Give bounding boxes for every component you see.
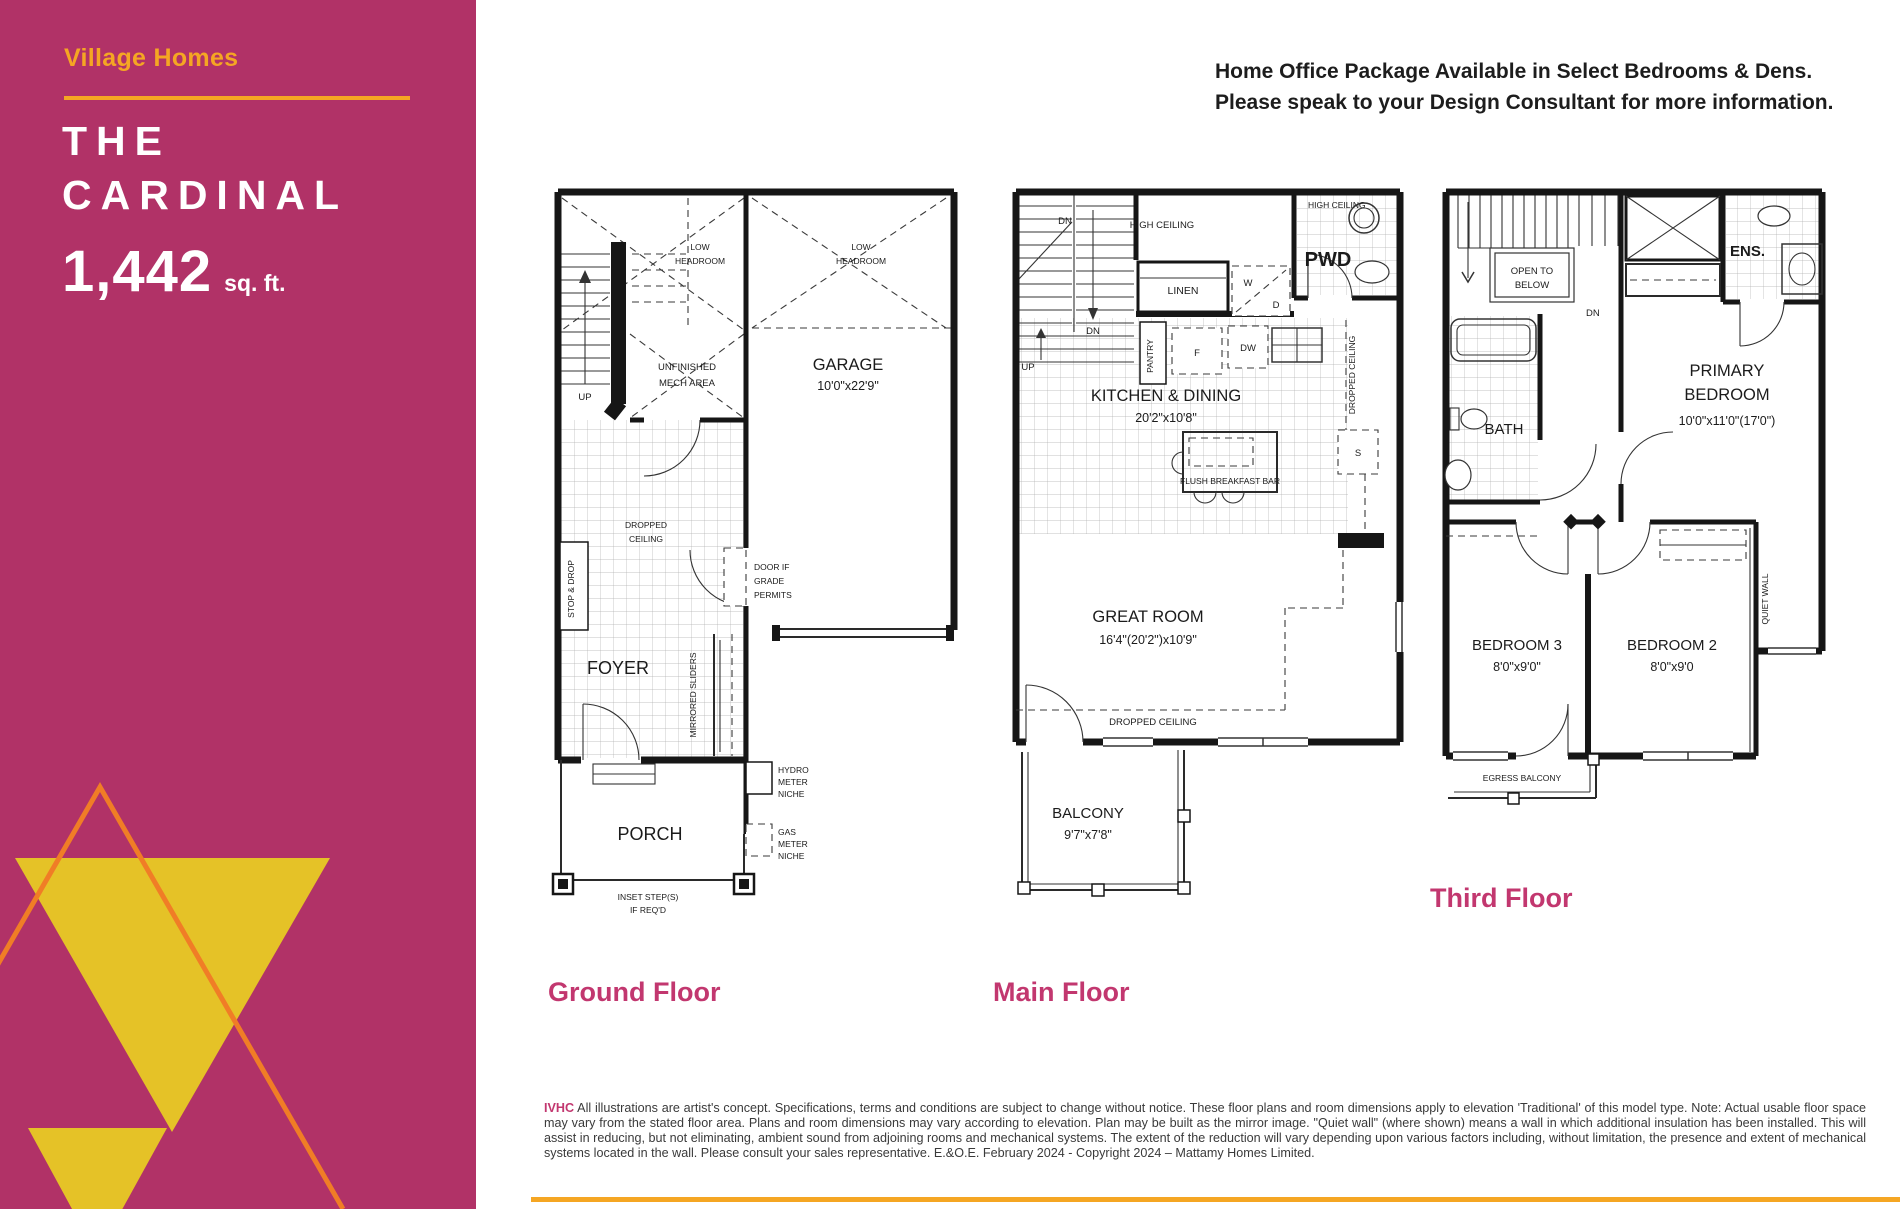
model-title-line1: THE <box>62 118 171 165</box>
egress-balcony-label: EGRESS BALCONY <box>1483 773 1562 783</box>
large-triangle-shape <box>15 858 330 1132</box>
bedroom2-label: BEDROOM 2 <box>1627 637 1717 654</box>
egress-door <box>1516 704 1568 756</box>
primary-bedroom-dims: 10'0"x11'0"(17'0") <box>1679 414 1776 428</box>
quiet-wall-label: QUIET WALL <box>1760 573 1770 624</box>
brand-name: Village Homes <box>64 44 238 73</box>
primary-door-arc <box>1621 432 1673 484</box>
garage-label: GARAGE <box>813 356 884 374</box>
balcony-dims: 9'7"x7'8" <box>1064 828 1112 842</box>
balcony-railing <box>1018 750 1190 896</box>
mech-area-label: UNFINISHED <box>658 362 716 373</box>
ground-floor-plan: LOW HEADROOM LOW HEADROOM UP UNFINISHED … <box>548 182 970 922</box>
disclaimer: IVHC All illustrations are artist's conc… <box>544 1101 1866 1161</box>
disclaimer-text: All illustrations are artist's concept. … <box>544 1101 1866 1160</box>
dropped-ceiling-label-b: CEILING <box>629 534 663 544</box>
bedroom3-dims: 8'0"x9'0" <box>1493 660 1541 674</box>
bath-sink <box>1445 460 1471 490</box>
pwd-toilet <box>1355 261 1389 283</box>
up-label: UP <box>578 392 591 403</box>
square-footage: 1,442 sq. ft. <box>62 238 286 305</box>
optional-grade-door <box>724 548 746 606</box>
high-ceiling-label-2: HIGH CEILING <box>1308 200 1366 210</box>
small-triangle-shape <box>28 1128 167 1209</box>
stairs-up <box>560 242 626 420</box>
mech-area-label-b: MECH AREA <box>659 378 716 389</box>
stop-drop-label: STOP & DROP <box>566 560 576 618</box>
washer-label: W <box>1244 278 1253 289</box>
bedroom2-dims: 8'0"x9'0 <box>1650 660 1693 674</box>
bedroom3-label: BEDROOM 3 <box>1472 637 1562 654</box>
open-to-below-label-1: OPEN TO <box>1511 266 1553 277</box>
foyer-label: FOYER <box>587 658 649 678</box>
brand-underline <box>64 96 410 100</box>
dn-label-1: DN <box>1058 216 1072 227</box>
disclaimer-code: IVHC <box>544 1101 574 1115</box>
pwd-label: PWD <box>1305 249 1352 271</box>
open-to-below-label-2: BELOW <box>1515 280 1549 291</box>
up-label-main: UP <box>1021 362 1034 373</box>
door-grade-label-1: DOOR IF <box>754 562 789 572</box>
hydro-label-1: HYDRO <box>778 765 809 775</box>
brochure-page: Village Homes THE CARDINAL 1,442 sq. ft.… <box>0 0 1900 1209</box>
inset-step-label-1: INSET STEP(S) <box>618 892 679 902</box>
sink-label: S <box>1355 448 1361 459</box>
low-headroom-label-1b: HEADROOM <box>675 256 725 266</box>
bath-toilet <box>1461 409 1487 429</box>
breakfast-bar-label: FLUSH BREAKFAST BAR <box>1180 476 1280 486</box>
gas-meter-niche-box <box>746 824 772 856</box>
hydro-label-3: NICHE <box>778 789 805 799</box>
third-floor-plan: OPEN TO BELOW DN ENS. BATH PRIMARY BEDRO… <box>1438 182 1833 832</box>
dishwasher-label: DW <box>1240 343 1256 354</box>
header-line1: Home Office Package Available in Select … <box>1215 56 1833 87</box>
model-title-line2: CARDINAL <box>62 172 348 219</box>
wall-jog-block <box>1338 533 1384 548</box>
sqft-value: 1,442 <box>62 238 212 305</box>
low-headroom-label-1: LOW <box>690 242 709 252</box>
inset-step-label-2: IF REQ'D <box>630 905 666 915</box>
bottom-gold-rule <box>531 1197 1900 1202</box>
garage-dims: 10'0"x22'9" <box>817 379 879 393</box>
sqft-unit: sq. ft. <box>224 270 285 297</box>
gas-label-3: NICHE <box>778 851 805 861</box>
ensuite-label: ENS. <box>1730 243 1765 260</box>
up-arrowhead <box>579 270 591 283</box>
mirrored-sliders-label: MIRRORED SLIDERS <box>688 652 698 737</box>
door-grade-label-2: GRADE <box>754 576 785 586</box>
dn-label-third: DN <box>1586 308 1600 319</box>
hydro-meter-niche-box <box>746 762 772 794</box>
primary-bedroom-label-2: BEDROOM <box>1684 386 1769 404</box>
linen-label: LINEN <box>1168 285 1199 297</box>
header-line2: Please speak to your Design Consultant f… <box>1215 87 1833 118</box>
low-headroom-label-2b: HEADROOM <box>836 256 886 266</box>
hydro-label-2: METER <box>778 777 808 787</box>
porch-label: PORCH <box>617 824 682 844</box>
kitchen-dining-dims: 20'2"x10'8" <box>1135 411 1197 425</box>
triangle-motif <box>0 750 476 1209</box>
primary-bedroom-label-1: PRIMARY <box>1690 362 1765 380</box>
low-headroom-label-2: LOW <box>851 242 870 252</box>
third-floor-label: Third Floor <box>1430 883 1572 914</box>
dropped-ceiling-vertical-label: DROPPED CEILING <box>1347 336 1357 414</box>
balcony-door <box>1026 685 1083 742</box>
high-ceiling-label-1: HIGH CEILING <box>1130 220 1194 231</box>
kitchen-dining-label: KITCHEN & DINING <box>1091 387 1241 405</box>
bath-label: BATH <box>1485 421 1524 438</box>
ensuite-toilet <box>1758 206 1790 226</box>
dn-label-2: DN <box>1086 326 1100 337</box>
gas-label-2: METER <box>778 839 808 849</box>
pantry-label: PANTRY <box>1145 339 1155 373</box>
bedroom2-closet <box>1660 530 1746 560</box>
sidebar: Village Homes THE CARDINAL 1,442 sq. ft. <box>0 0 476 1209</box>
ground-floor-label: Ground Floor <box>548 977 720 1008</box>
primary-closet <box>1626 196 1720 296</box>
header-note: Home Office Package Available in Select … <box>1215 56 1833 118</box>
fridge-label: F <box>1194 348 1200 359</box>
great-room-dims: 16'4"(20'2")x10'9" <box>1099 633 1197 647</box>
main-floor-plan: DN DN UP HIGH CEILING HIGH CEILING PWD L… <box>1008 182 1408 927</box>
main-floor-label: Main Floor <box>993 977 1130 1008</box>
dropped-ceiling-label: DROPPED <box>625 520 667 530</box>
balcony-label: BALCONY <box>1052 805 1124 822</box>
great-room-label: GREAT ROOM <box>1092 608 1203 626</box>
dropped-ceiling-label-2: DROPPED CEILING <box>1109 717 1197 728</box>
garage-door <box>772 625 954 641</box>
gas-label-1: GAS <box>778 827 796 837</box>
bath-door-arc <box>1540 444 1596 500</box>
dryer-label: D <box>1273 300 1280 311</box>
door-grade-label-3: PERMITS <box>754 590 792 600</box>
